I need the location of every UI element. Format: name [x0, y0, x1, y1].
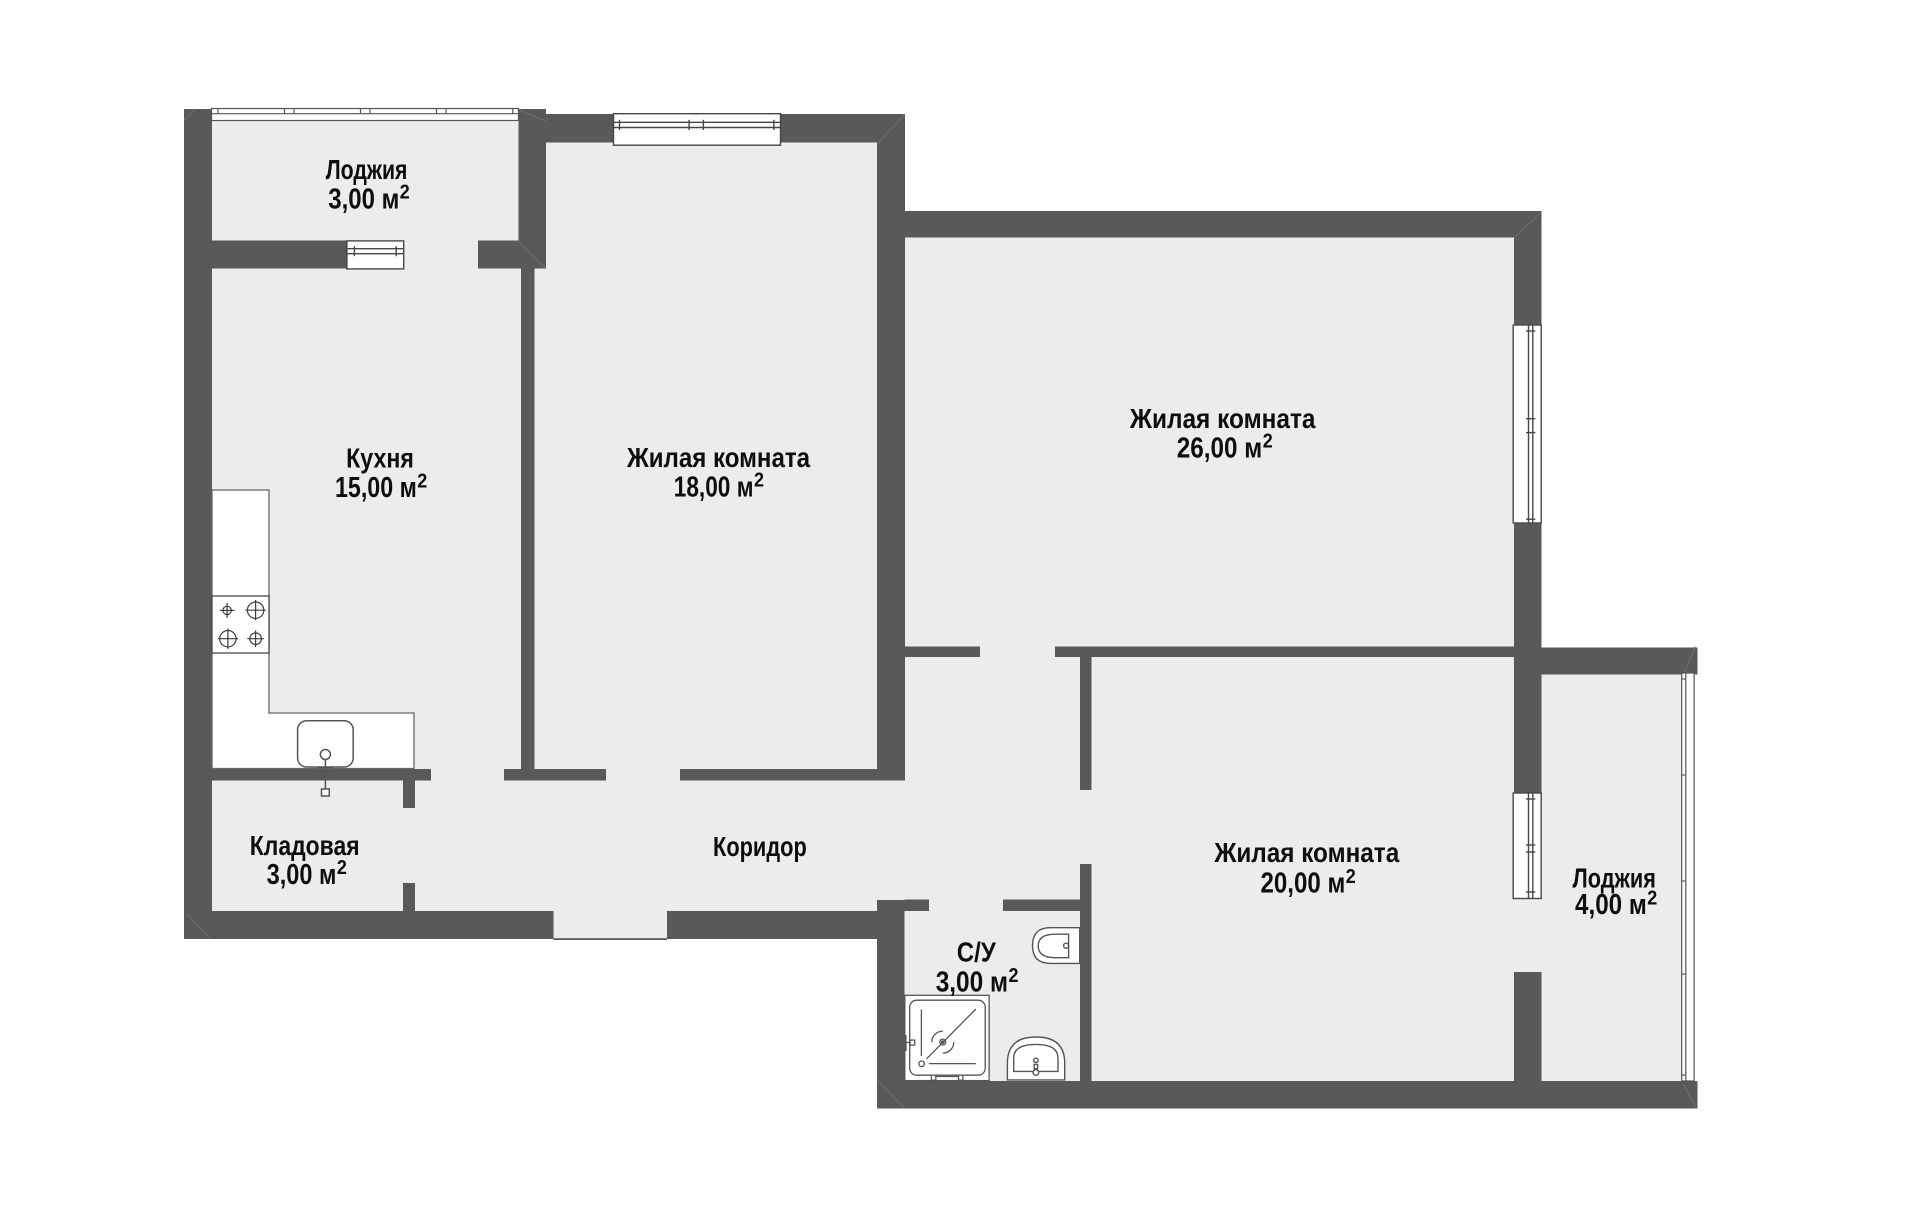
svg-text:15,00 м: 15,00 м [335, 472, 417, 504]
svg-text:2: 2 [1263, 431, 1273, 453]
svg-text:Кухня: Кухня [346, 443, 414, 474]
svg-text:Жилая комната: Жилая комната [626, 442, 810, 473]
svg-text:Лоджия: Лоджия [326, 154, 408, 185]
svg-text:2: 2 [754, 470, 764, 492]
svg-text:Жилая комната: Жилая комната [1129, 403, 1316, 434]
svg-text:Жилая комната: Жилая комната [1213, 837, 1399, 868]
svg-text:С/У: С/У [957, 936, 996, 967]
svg-text:3,00 м: 3,00 м [267, 859, 337, 891]
svg-text:20,00 м: 20,00 м [1261, 868, 1346, 900]
svg-text:2: 2 [400, 182, 410, 204]
svg-text:3,00 м: 3,00 м [328, 183, 399, 215]
svg-text:2: 2 [1009, 965, 1019, 987]
svg-text:2: 2 [337, 857, 347, 879]
svg-text:2: 2 [1647, 888, 1657, 910]
svg-text:2: 2 [417, 470, 427, 492]
svg-text:4,00 м: 4,00 м [1575, 889, 1647, 921]
svg-text:18,00 м: 18,00 м [674, 471, 754, 503]
svg-text:2: 2 [1346, 866, 1356, 888]
svg-text:26,00 м: 26,00 м [1177, 432, 1262, 464]
svg-text:3,00 м: 3,00 м [936, 967, 1008, 999]
svg-text:Коридор: Коридор [713, 831, 807, 862]
